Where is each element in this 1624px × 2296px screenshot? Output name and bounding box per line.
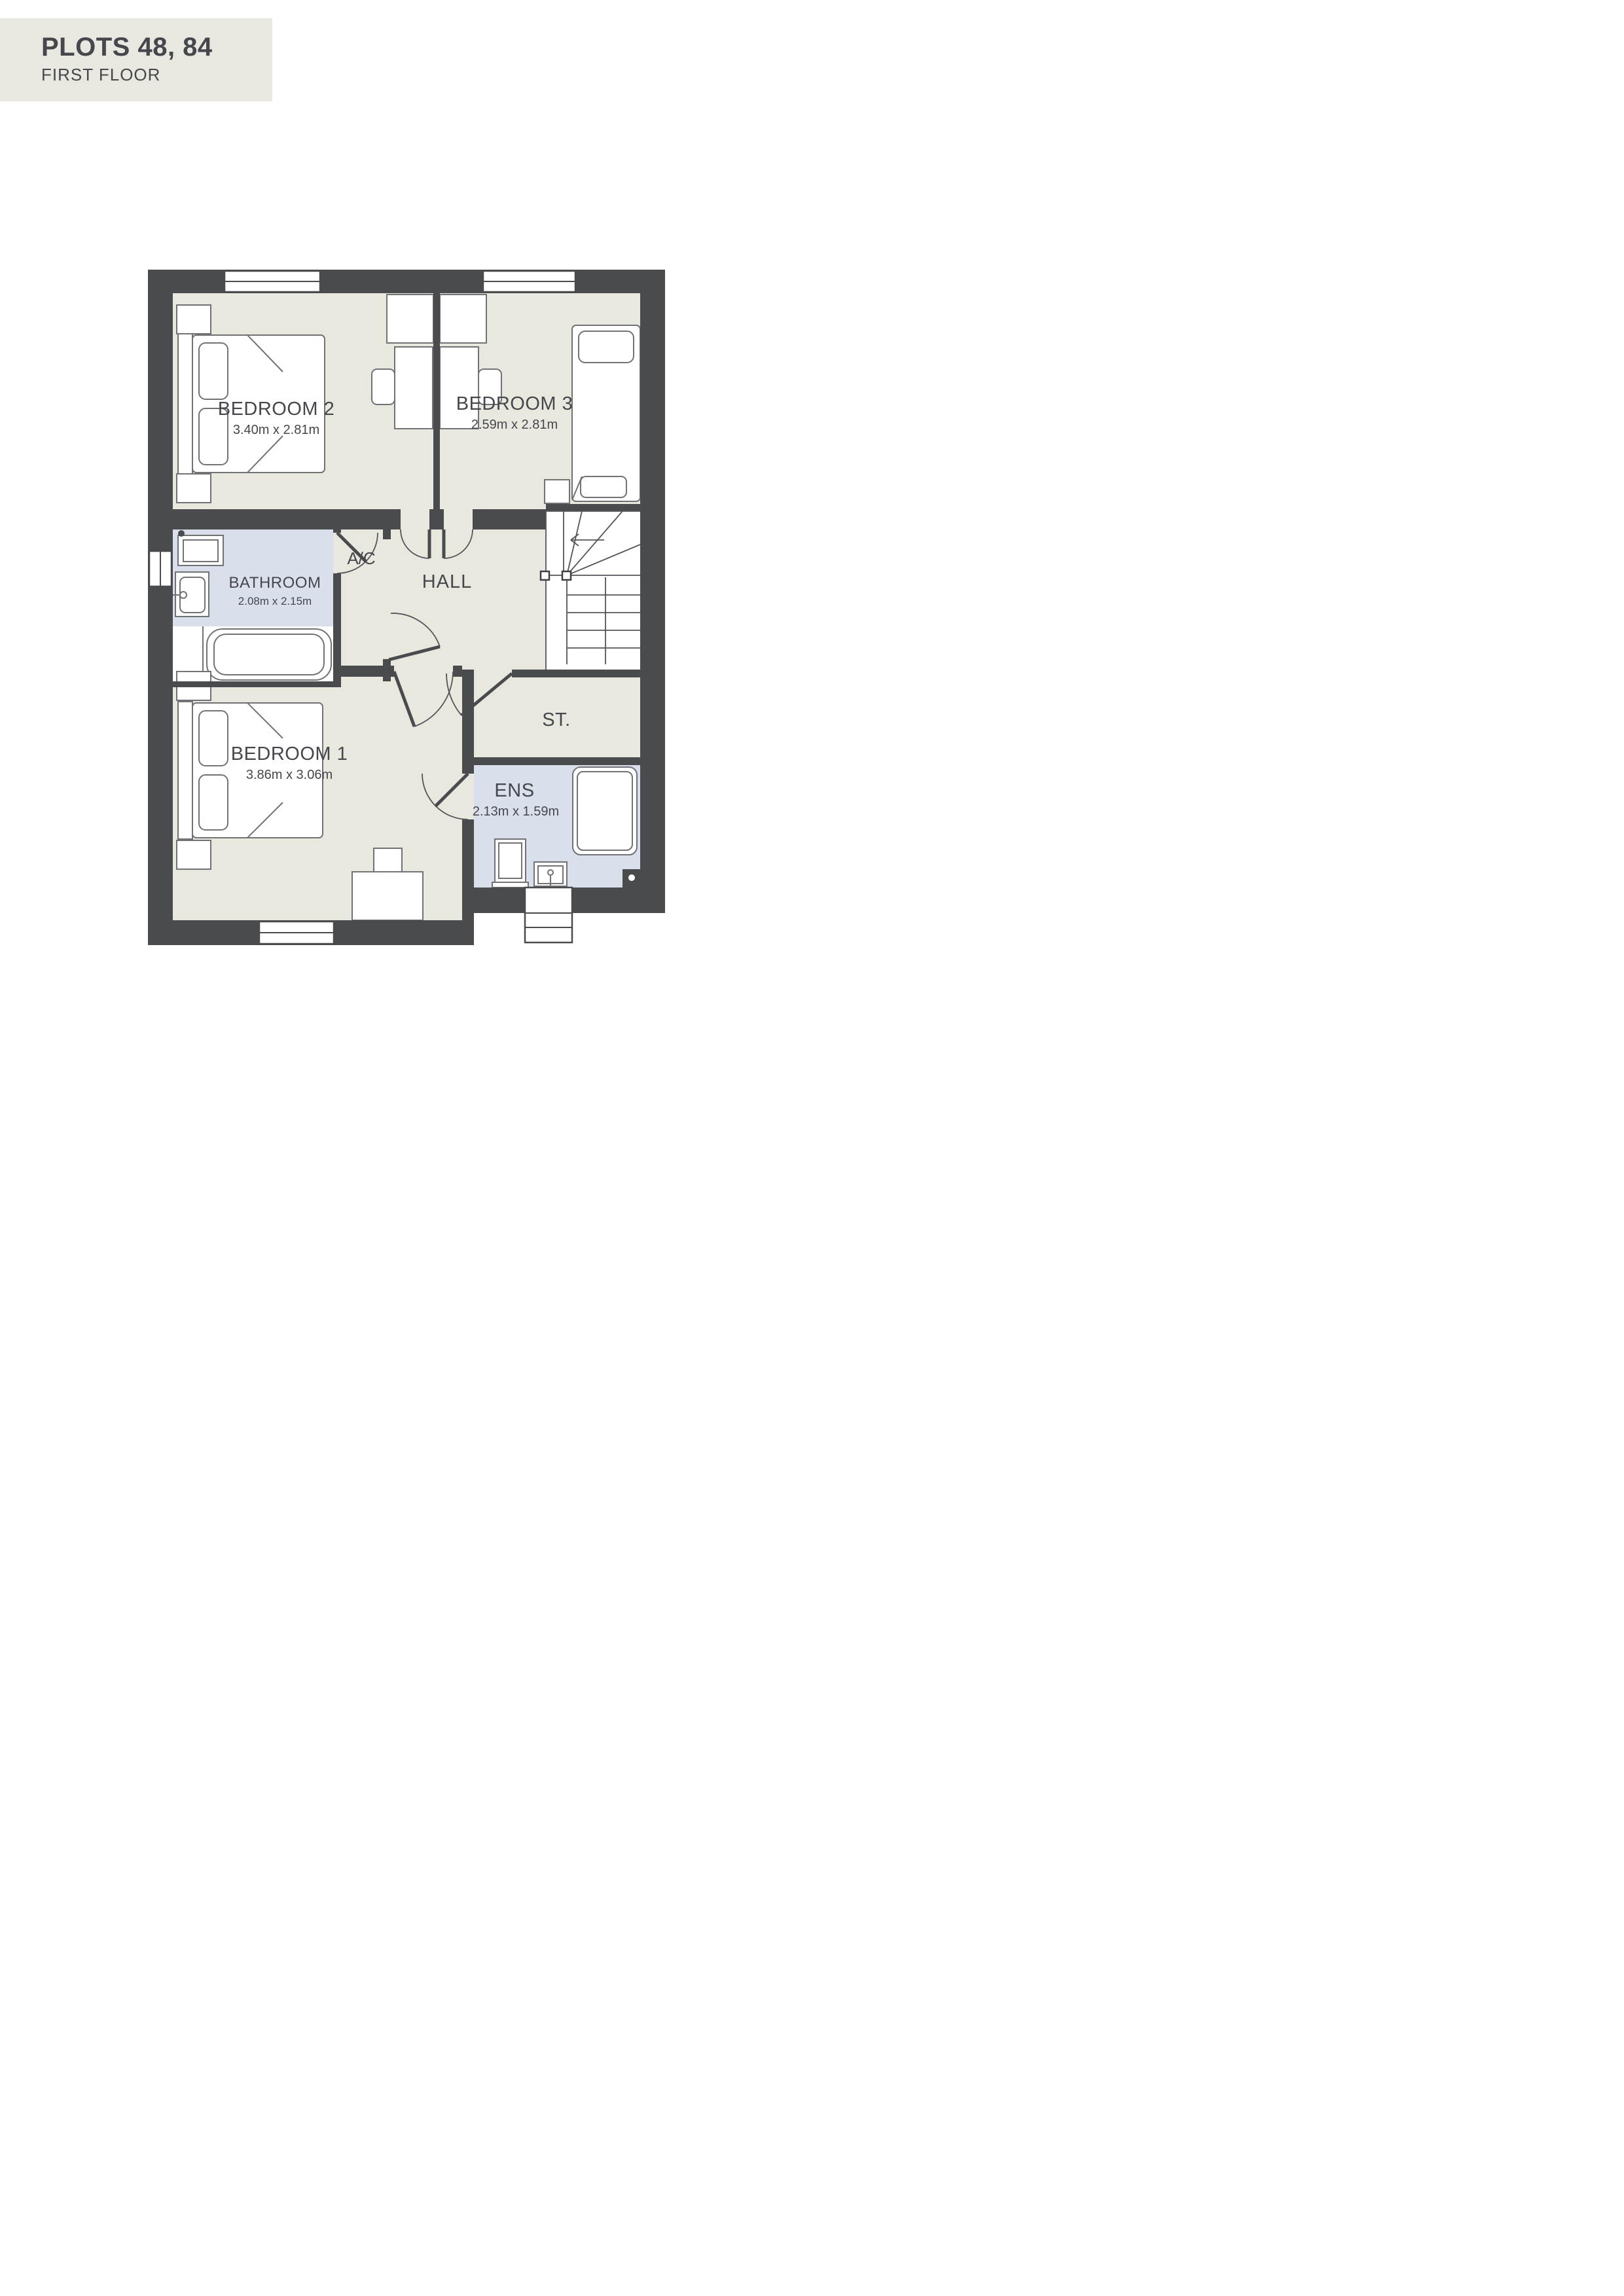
desk [440,347,478,429]
wall-bathroom-right [333,573,341,687]
pillow [579,331,634,363]
nightstand [545,480,569,503]
label-ac: A/C [347,548,375,568]
wall-hall-top-stub [429,509,444,529]
wall-outer-right [640,270,665,913]
label-bedroom1-dims: 3.86m x 3.06m [246,768,333,782]
wardrobe [387,295,433,343]
headboard [178,334,192,474]
wardrobe [352,872,423,920]
marker-dot-bathroom [178,530,185,537]
wardrobe [440,295,486,343]
wall-bathroom-right-stub [333,529,341,533]
page-title: PLOTS 48, 84 [41,34,272,60]
chair [372,369,395,404]
wall-ens-left-lower [462,819,474,945]
headboard [178,702,192,839]
wall-ens-left-upper [462,670,474,774]
stool [374,848,402,872]
window-ensuite [525,888,572,942]
label-bathroom: BATHROOM [229,574,321,592]
desk [395,347,433,429]
page-subtitle: FIRST FLOOR [41,66,272,83]
wall-ac-right-stub [383,529,391,539]
wall-bedroom-divider [433,293,440,509]
wall-hall-bottom-left [341,666,394,677]
page: PLOTS 48, 84 FIRST FLOOR [0,0,812,1148]
wall-hall-bottom-right [453,666,462,677]
stairwell-area [546,511,640,670]
newel-post [562,571,571,580]
wall-stairs-top [546,504,640,511]
floor-plan: BEDROOM 2 3.40m x 2.81m BEDROOM 3 2.59m … [148,270,665,945]
label-bathroom-dims: 2.08m x 2.15m [238,595,312,607]
wall-hall-top-left [173,509,401,529]
marker-dot-ensuite [628,874,635,881]
pillow [199,775,228,830]
wall-hall-top-right [473,509,546,529]
title-block: PLOTS 48, 84 FIRST FLOOR [0,18,272,101]
duvet [581,476,626,497]
label-bedroom2-dims: 3.40m x 2.81m [233,423,319,437]
label-ensuite: ENS [494,780,534,801]
toilet [495,839,526,882]
wall-store-bottom [474,757,640,765]
wall-outer-left [148,270,173,945]
label-bedroom3: BEDROOM 3 [456,393,573,414]
bathtub [207,629,331,680]
nightstand [177,474,211,503]
label-bedroom3-dims: 2.59m x 2.81m [471,418,558,432]
shower-tray [573,767,637,855]
nightstand [177,305,211,334]
wall-store-top [512,670,640,677]
pillow [199,343,228,399]
wall-bathroom-bottom [173,681,341,687]
label-bedroom1: BEDROOM 1 [231,744,348,764]
toilet-flush-knob [180,592,187,598]
tap [548,870,553,875]
nightstand [177,840,211,869]
label-hall: HALL [422,571,473,592]
label-ensuite-dims: 2.13m x 1.59m [473,804,559,819]
label-store: ST. [542,709,570,730]
toilet-base [492,882,528,888]
newel-post [541,571,549,580]
pillow [199,711,228,766]
label-bedroom2: BEDROOM 2 [218,399,335,420]
